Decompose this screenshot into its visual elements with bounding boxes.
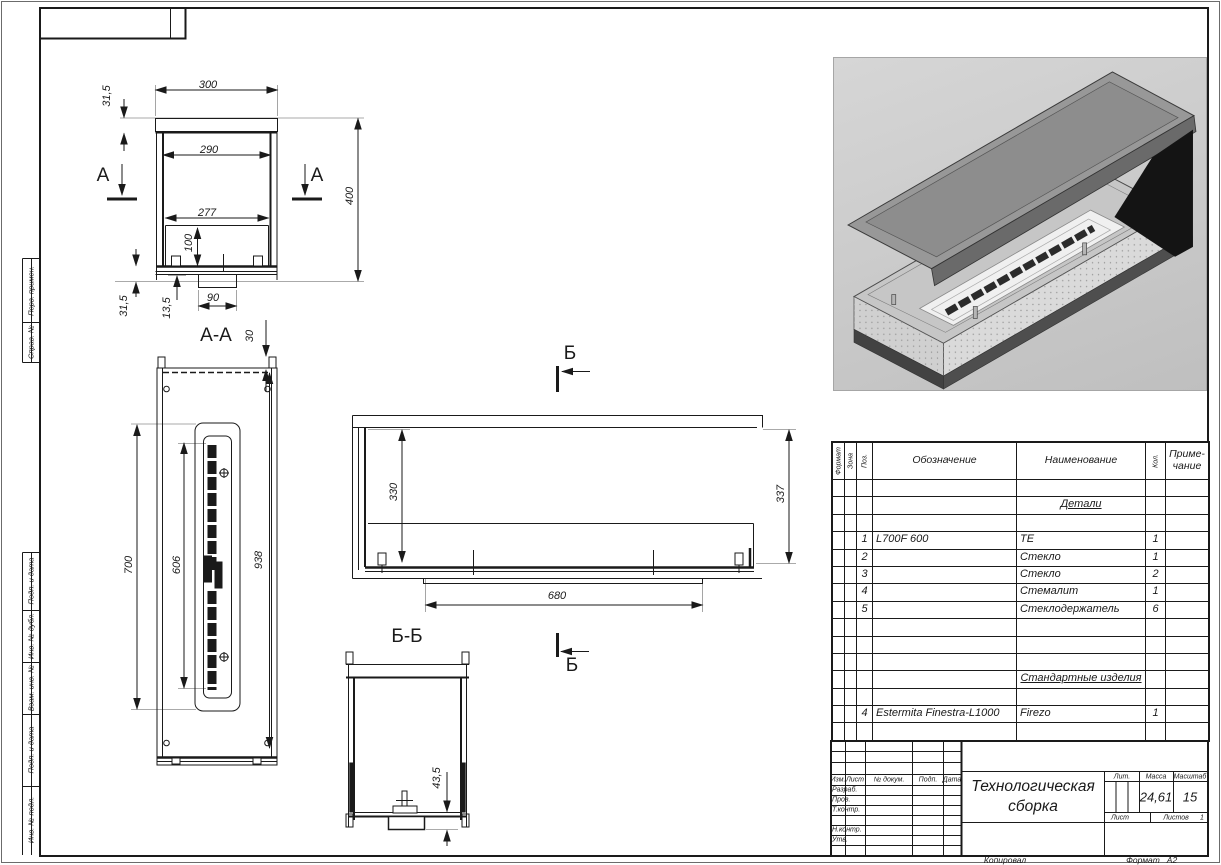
section-marker-a-left: А <box>97 165 110 187</box>
spec-table-row <box>833 636 1208 653</box>
spec-cell-format <box>833 550 845 566</box>
dim-31-5-top: 31,5 <box>101 85 113 106</box>
view-section-bb <box>346 633 589 846</box>
spec-cell-designation <box>873 723 1017 739</box>
drawing-sheet: 300 31,5 290 277 100 400 90 31,5 13,5 А … <box>0 0 1221 864</box>
spec-cell-pos: 5 <box>857 602 873 618</box>
render-3d-drawing <box>834 58 1206 390</box>
spec-cell-pos: 4 <box>857 584 873 600</box>
document-title: Технологическая сборка <box>971 777 1095 817</box>
spec-cell-qty: 6 <box>1146 602 1166 618</box>
spec-cell-pos <box>857 637 873 653</box>
view-label-a-a: А-А <box>200 325 232 347</box>
spec-cell-qty <box>1146 723 1166 739</box>
spec-cell-qty <box>1146 637 1166 653</box>
spec-cell-pos <box>857 619 873 635</box>
spec-cell-name <box>1017 515 1146 531</box>
spec-cell-pos: 4 <box>857 706 873 722</box>
spec-cell-pos: 3 <box>857 567 873 583</box>
spec-cell-designation <box>873 654 1017 670</box>
margin-label-sprav-no: Справ. № <box>27 325 36 359</box>
spec-header-note: Приме- чание <box>1166 443 1208 479</box>
spec-cell-name: Детали <box>1017 497 1146 513</box>
spec-table-row <box>833 653 1208 670</box>
spec-cell-note <box>1166 706 1208 722</box>
dim-400: 400 <box>344 187 356 205</box>
spec-cell-pos <box>857 515 873 531</box>
titleblock-scale-label: Масштаб <box>1174 774 1207 781</box>
spec-cell-zone <box>845 671 857 687</box>
document-title-line2: сборка <box>971 797 1095 817</box>
spec-cell-name <box>1017 654 1146 670</box>
dim-680: 680 <box>548 590 566 602</box>
section-marker-b-top: Б <box>564 343 576 365</box>
dim-337: 337 <box>775 485 787 503</box>
dim-700: 700 <box>123 556 135 574</box>
spec-table-header: Формат Зона Поз. Обозначение Наименовани… <box>833 443 1208 479</box>
spec-table-row: 4 Estermita Finestra-L1000 Firezo 1 <box>833 705 1208 722</box>
spec-cell-format <box>833 515 845 531</box>
spec-cell-zone <box>845 480 857 496</box>
titleblock-role-ncontrol: Н.контр. <box>832 827 862 834</box>
margin-label-podp-data-2: Подп. и дата <box>27 727 36 774</box>
spec-cell-qty <box>1146 619 1166 635</box>
spec-cell-name <box>1017 480 1146 496</box>
titleblock-mass-value: 24,61 <box>1140 790 1173 805</box>
dim-277: 277 <box>198 207 216 219</box>
dim-100: 100 <box>183 234 195 252</box>
dim-90: 90 <box>207 292 219 304</box>
spec-cell-name: ТЕ <box>1017 532 1146 548</box>
titleblock-sheet-label: Лист <box>1111 815 1129 822</box>
spec-cell-zone <box>845 602 857 618</box>
spec-cell-format <box>833 637 845 653</box>
titleblock-col-date: Дата <box>943 777 961 784</box>
spec-cell-name: Стандартные изделия <box>1017 671 1146 687</box>
spec-cell-name: Стекло <box>1017 550 1146 566</box>
spec-cell-name: Firezo <box>1017 706 1146 722</box>
spec-cell-name: Стемалит <box>1017 584 1146 600</box>
spec-cell-designation <box>873 584 1017 600</box>
spec-cell-zone <box>845 689 857 705</box>
spec-cell-note <box>1166 602 1208 618</box>
spec-cell-name <box>1017 619 1146 635</box>
spec-cell-format <box>833 689 845 705</box>
spec-table-body: Детали 1 L700F 600 ТЕ 1 2 Стекло 1 3 Сте… <box>833 479 1208 740</box>
spec-cell-format <box>833 602 845 618</box>
margin-label-podp-data-1: Подп. и дата <box>27 558 36 605</box>
spec-cell-zone <box>845 637 857 653</box>
titleblock-sheets-label: Листов <box>1163 815 1189 822</box>
spec-cell-designation <box>873 689 1017 705</box>
spec-cell-format <box>833 532 845 548</box>
spec-cell-zone <box>845 550 857 566</box>
spec-cell-format <box>833 584 845 600</box>
spec-header-designation: Обозначение <box>873 443 1017 479</box>
spec-cell-note <box>1166 497 1208 513</box>
spec-cell-format <box>833 619 845 635</box>
section-marker-b-bottom: Б <box>566 655 578 677</box>
spec-cell-designation <box>873 671 1017 687</box>
spec-header-format: Формат <box>833 443 845 479</box>
spec-cell-qty <box>1146 689 1166 705</box>
spec-table-row <box>833 514 1208 531</box>
spec-cell-zone <box>845 532 857 548</box>
spec-cell-zone <box>845 497 857 513</box>
spec-cell-format <box>833 671 845 687</box>
dim-330: 330 <box>388 483 400 501</box>
spec-table-row: 2 Стекло 1 <box>833 549 1208 566</box>
spec-cell-designation <box>873 480 1017 496</box>
spec-cell-zone <box>845 619 857 635</box>
spec-cell-format <box>833 654 845 670</box>
spec-cell-note <box>1166 654 1208 670</box>
spec-table-row: 5 Стеклодержатель 6 <box>833 601 1208 618</box>
spec-table-row <box>833 479 1208 496</box>
spec-cell-pos <box>857 497 873 513</box>
spec-cell-zone <box>845 515 857 531</box>
titleblock-mass-label: Масса <box>1146 774 1167 781</box>
spec-cell-pos <box>857 689 873 705</box>
spec-cell-designation: L700F 600 <box>873 532 1017 548</box>
spec-header-pos: Поз. <box>857 443 873 479</box>
spec-cell-designation <box>873 567 1017 583</box>
spec-cell-format <box>833 497 845 513</box>
spec-cell-note <box>1166 619 1208 635</box>
titleblock-sheets-value: 1 <box>1200 815 1204 822</box>
spec-cell-note <box>1166 515 1208 531</box>
spec-cell-pos <box>857 723 873 739</box>
spec-cell-qty <box>1146 497 1166 513</box>
document-title-line1: Технологическая <box>971 777 1095 797</box>
spec-table-row: Стандартные изделия <box>833 670 1208 687</box>
spec-cell-designation <box>873 637 1017 653</box>
spec-table-row: 1 L700F 600 ТЕ 1 <box>833 531 1208 548</box>
spec-cell-note <box>1166 637 1208 653</box>
spec-cell-name: Стекло <box>1017 567 1146 583</box>
spec-cell-zone <box>845 654 857 670</box>
titleblock-role-checked: Пров. <box>832 797 850 804</box>
spec-table-row <box>833 618 1208 635</box>
dim-290: 290 <box>200 144 218 156</box>
spec-cell-designation <box>873 515 1017 531</box>
spec-cell-designation <box>873 602 1017 618</box>
titleblock-col-doc: № докум. <box>874 777 905 784</box>
spec-cell-qty: 1 <box>1146 706 1166 722</box>
spec-cell-note <box>1166 480 1208 496</box>
spec-cell-qty <box>1146 480 1166 496</box>
spec-cell-note <box>1166 567 1208 583</box>
render-3d-image <box>833 57 1207 391</box>
spec-cell-designation <box>873 550 1017 566</box>
dim-938: 938 <box>253 551 265 569</box>
spec-cell-note <box>1166 723 1208 739</box>
spec-header-zone: Зона <box>845 443 857 479</box>
spec-cell-qty: 1 <box>1146 584 1166 600</box>
titleblock-col-list: Лист <box>846 777 864 784</box>
spec-cell-format <box>833 480 845 496</box>
dim-606: 606 <box>171 556 183 574</box>
dim-43-5: 43,5 <box>431 767 443 788</box>
dim-13-5: 13,5 <box>161 297 173 318</box>
spec-cell-format <box>833 706 845 722</box>
titleblock-role-developed: Разраб. <box>832 787 857 794</box>
view-end-section <box>107 85 364 392</box>
spec-header-name: Наименование <box>1017 443 1146 479</box>
spec-cell-note <box>1166 532 1208 548</box>
titleblock-role-approved: Утв. <box>832 837 848 844</box>
titleblock-role-tcontrol: Т.контр. <box>832 807 860 814</box>
spec-cell-qty <box>1146 671 1166 687</box>
spec-cell-pos <box>857 654 873 670</box>
spec-cell-designation <box>873 619 1017 635</box>
margin-label-inv-podl: Инв. № подл. <box>27 797 36 844</box>
spec-cell-name <box>1017 689 1146 705</box>
spec-cell-zone <box>845 723 857 739</box>
spec-cell-qty <box>1146 515 1166 531</box>
spec-cell-pos <box>857 480 873 496</box>
spec-cell-pos <box>857 671 873 687</box>
spec-cell-name: Стеклодержатель <box>1017 602 1146 618</box>
titleblock-lit-label: Лит. <box>1114 774 1130 781</box>
spec-cell-pos: 2 <box>857 550 873 566</box>
spec-table: Формат Зона Поз. Обозначение Наименовани… <box>831 441 1210 742</box>
spec-cell-note <box>1166 584 1208 600</box>
spec-table-row: 3 Стекло 2 <box>833 566 1208 583</box>
view-label-b-b: Б-Б <box>391 626 422 648</box>
dim-30: 30 <box>244 330 256 342</box>
margin-label-perv-primen: Перв. примен. <box>27 266 36 316</box>
spec-cell-zone <box>845 567 857 583</box>
section-marker-a-right: А <box>311 165 324 187</box>
titleblock-scale-value: 15 <box>1183 790 1197 805</box>
titleblock-col-izm: Изм. <box>831 777 846 784</box>
spec-cell-qty <box>1146 654 1166 670</box>
spec-cell-designation: Estermita Finestra-L1000 <box>873 706 1017 722</box>
spec-cell-note <box>1166 671 1208 687</box>
spec-cell-zone <box>845 706 857 722</box>
spec-header-qty: Кол. <box>1146 443 1166 479</box>
spec-cell-pos: 1 <box>857 532 873 548</box>
spec-table-row <box>833 722 1208 739</box>
spec-cell-qty: 1 <box>1146 532 1166 548</box>
spec-cell-qty: 1 <box>1146 550 1166 566</box>
spec-cell-name <box>1017 723 1146 739</box>
dim-300: 300 <box>199 79 217 91</box>
margin-label-vzam-inv: Взам. инв. № <box>27 665 36 711</box>
spec-cell-format <box>833 567 845 583</box>
spec-cell-qty: 2 <box>1146 567 1166 583</box>
spec-cell-designation <box>873 497 1017 513</box>
spec-table-row: Детали <box>833 496 1208 513</box>
spec-cell-note <box>1166 550 1208 566</box>
spec-cell-format <box>833 723 845 739</box>
titleblock-col-sign: Подп. <box>919 777 938 784</box>
spec-table-row <box>833 688 1208 705</box>
spec-cell-zone <box>845 584 857 600</box>
view-front <box>353 366 797 612</box>
margin-label-inv-dubl: Инв. № дубл. <box>27 613 36 659</box>
spec-cell-name <box>1017 637 1146 653</box>
spec-table-row: 4 Стемалит 1 <box>833 583 1208 600</box>
spec-cell-note <box>1166 689 1208 705</box>
dim-31-5-bottom: 31,5 <box>118 295 130 316</box>
